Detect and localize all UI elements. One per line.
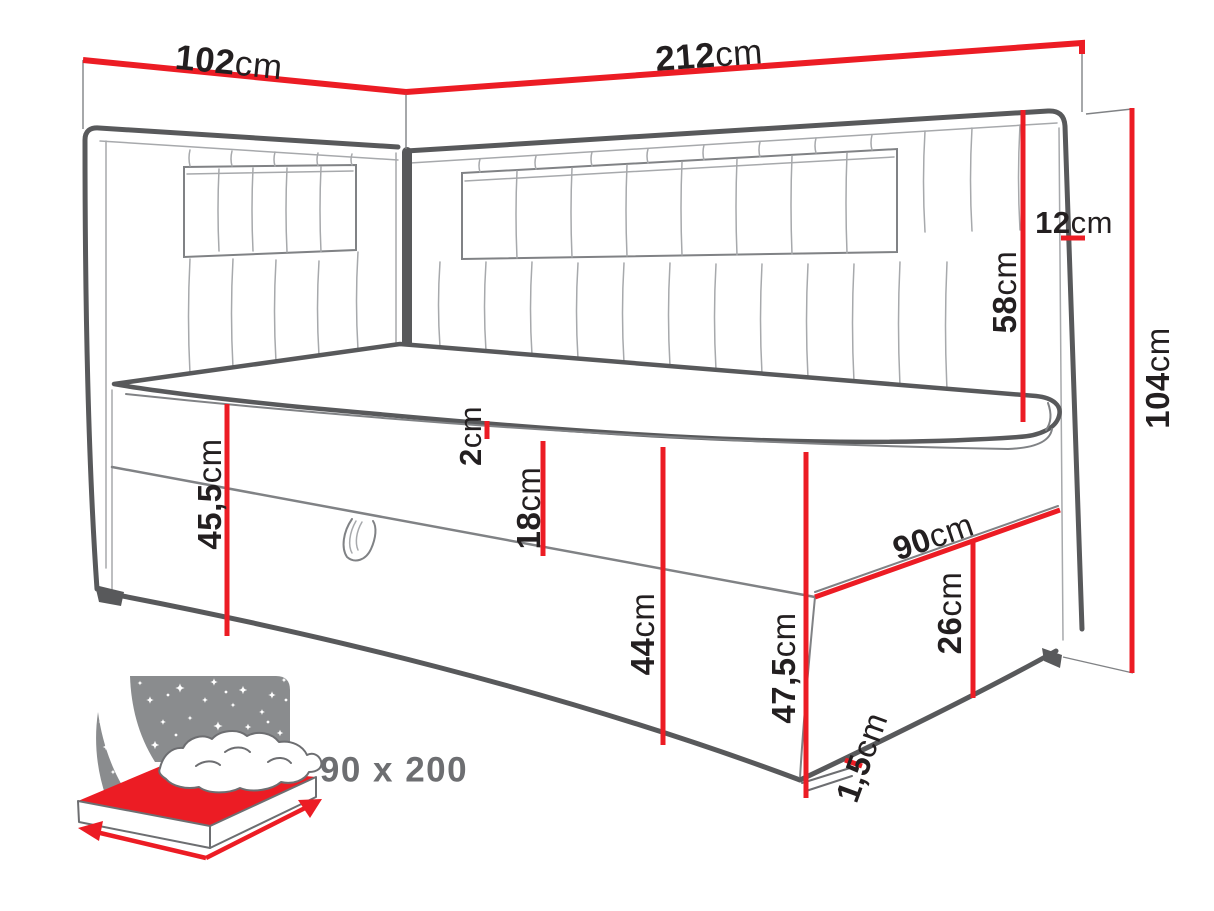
dimension-label-18cm: 18cm bbox=[510, 467, 547, 550]
dimension-label-2cm: 2cm bbox=[453, 406, 488, 466]
left-headboard-cushion bbox=[184, 165, 356, 257]
dimension-label-212cm: 212cm bbox=[654, 32, 764, 79]
dimension-label-45-5cm: 45,5cm bbox=[191, 438, 228, 549]
size-badge-label: 90 x 200 bbox=[320, 751, 468, 790]
diagram-canvas: 102cm 212cm 12cm 58cm 104cm 45,5cm 2cm 1… bbox=[0, 0, 1214, 911]
size-badge: 90 x 200 bbox=[78, 676, 468, 858]
dimension-label-26cm: 26cm bbox=[931, 572, 968, 655]
dimension-label-104cm: 104cm bbox=[1139, 327, 1176, 429]
dimension-label-44cm: 44cm bbox=[624, 593, 661, 676]
dimension-label-1-5cm: 1,5cm bbox=[828, 707, 894, 806]
dimension-label-12cm: 12cm bbox=[1035, 205, 1113, 240]
base-handle bbox=[344, 519, 376, 560]
dimension-label-102cm: 102cm bbox=[174, 37, 285, 86]
corner-bed-dimension-diagram: 102cm 212cm 12cm 58cm 104cm 45,5cm 2cm 1… bbox=[0, 0, 1214, 911]
dimension-label-47-5cm: 47,5cm bbox=[765, 612, 802, 723]
left-foot bbox=[95, 585, 124, 606]
dimension-label-58cm: 58cm bbox=[986, 251, 1023, 334]
base-side-bottom-edge bbox=[800, 651, 1056, 780]
bed-icon bbox=[78, 676, 322, 858]
